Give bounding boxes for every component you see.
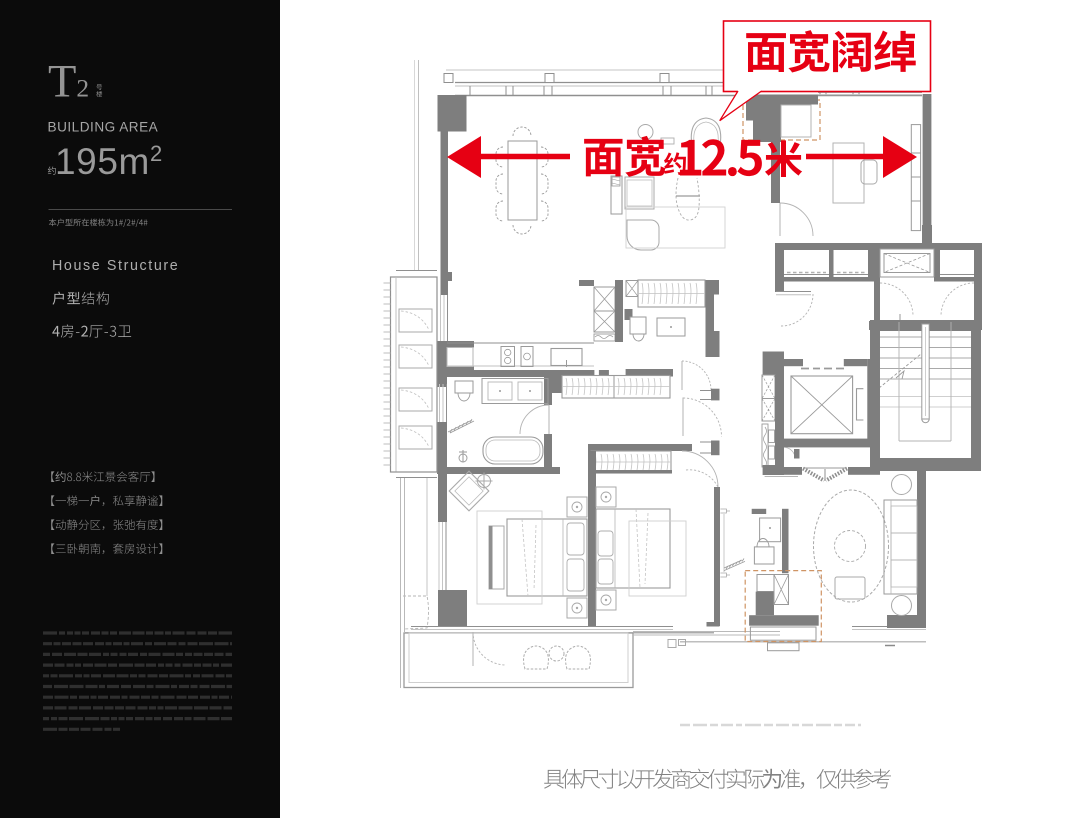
svg-text:195m2: 195m2 xyxy=(55,141,163,182)
svg-text:House Structure: House Structure xyxy=(52,258,179,274)
svg-text:BUILDING AREA: BUILDING AREA xyxy=(48,120,159,135)
